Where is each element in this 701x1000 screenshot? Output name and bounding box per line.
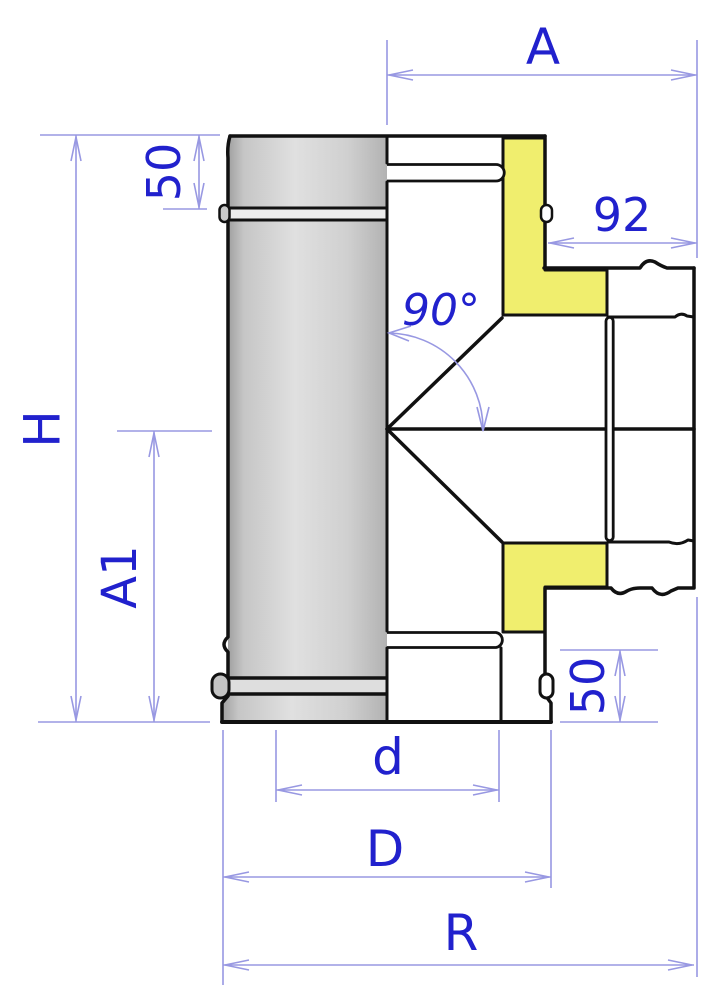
insulation-upper-L [503, 138, 607, 315]
dim-label-A: A [526, 18, 560, 76]
crimp-bump-right [541, 205, 552, 222]
pipe-left-edge [222, 136, 230, 721]
socket-band-top [387, 165, 504, 182]
bead-bump-left [212, 674, 229, 698]
branch-bottom-wall [546, 588, 694, 594]
dim-label-A1: A1 [92, 545, 148, 608]
drawing-canvas: A 92 50 H A1 50 90° d D R [0, 0, 701, 1000]
right-wall-lower [545, 588, 551, 721]
bead-band [226, 679, 387, 693]
pipe-outer-half [222, 136, 387, 722]
tee-fitting-drawing: A 92 50 H A1 50 90° d D R [0, 0, 701, 1000]
pipe-gray-body [228, 136, 387, 722]
dim-label-R: R [444, 904, 479, 962]
dim-label-50-bottom: 50 [561, 657, 615, 716]
dim-label-H: H [14, 410, 72, 448]
socket-band-branch [606, 317, 613, 540]
branch-top-wall [544, 261, 694, 268]
pipe-bottom-flare [222, 695, 387, 722]
dim-label-D: D [366, 820, 405, 878]
dim-label-50-top: 50 [137, 143, 191, 202]
bead-bump-right [540, 674, 553, 698]
dim-label-92: 92 [593, 188, 652, 242]
crimp-bump-left [220, 205, 230, 222]
branch-inner-bottom [608, 540, 694, 544]
dim-label-d: d [372, 728, 404, 786]
socket-band-bottom [387, 633, 502, 648]
crimp-band [228, 209, 387, 219]
angle-label: 90° [402, 285, 480, 336]
insulation [503, 138, 607, 632]
branch-inner-top [608, 314, 694, 317]
